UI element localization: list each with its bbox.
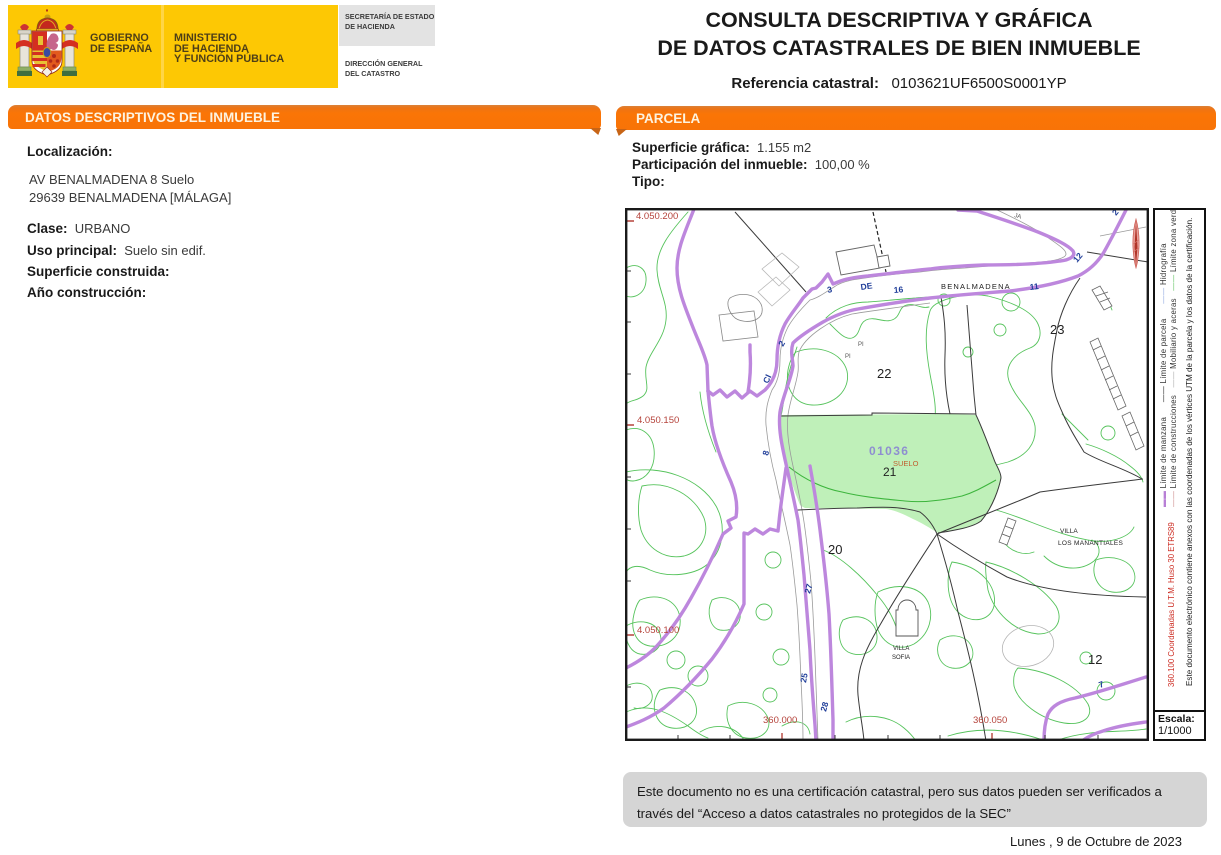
- svg-text:25: 25: [798, 672, 810, 683]
- svg-text:PI: PI: [858, 342, 864, 348]
- svg-text:SUELO: SUELO: [893, 459, 919, 468]
- svg-text:12: 12: [1088, 652, 1102, 667]
- svg-text:16: 16: [893, 284, 904, 295]
- svg-text:LOS MANANTIALES: LOS MANANTIALES: [1058, 540, 1124, 547]
- svg-text:VILLA: VILLA: [893, 646, 909, 652]
- svg-text:20: 20: [828, 542, 842, 557]
- svg-text:360.000: 360.000: [763, 715, 797, 726]
- svg-text:01036: 01036: [869, 444, 909, 458]
- svg-text:SOFIA: SOFIA: [892, 655, 910, 661]
- svg-text:11: 11: [1029, 281, 1039, 292]
- svg-text:360.050: 360.050: [973, 715, 1007, 726]
- svg-text:4.050.200: 4.050.200: [636, 211, 678, 222]
- svg-text:4.050.150: 4.050.150: [637, 415, 679, 426]
- svg-text:22: 22: [877, 366, 891, 381]
- svg-text:DE: DE: [860, 280, 873, 292]
- svg-text:4.050.100: 4.050.100: [637, 625, 679, 636]
- svg-text:BENALMADENA: BENALMADENA: [941, 282, 1011, 291]
- svg-text:PI: PI: [845, 354, 851, 360]
- svg-text:VILLA: VILLA: [1060, 528, 1078, 535]
- svg-text:23: 23: [1050, 322, 1064, 337]
